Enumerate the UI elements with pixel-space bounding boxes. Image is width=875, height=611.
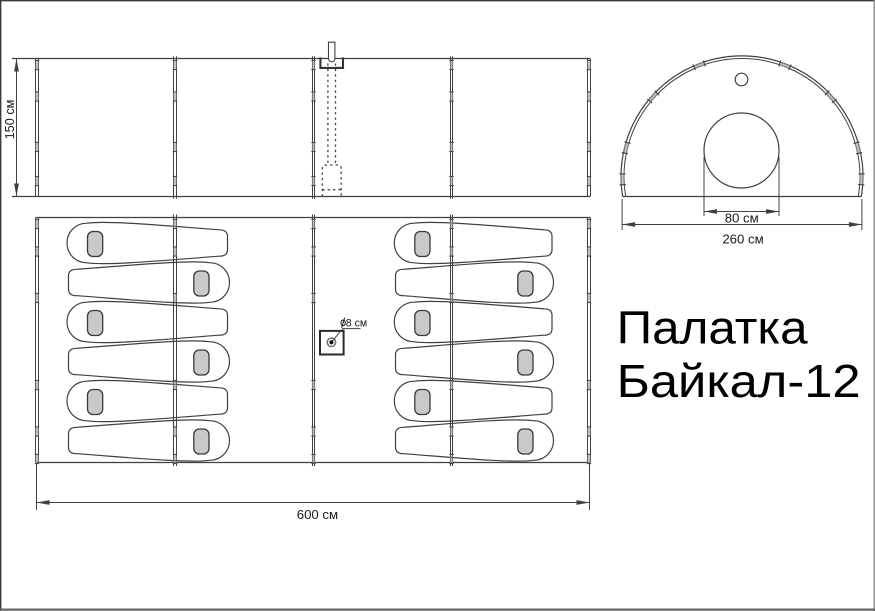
svg-text:Байкал-12: Байкал-12: [617, 355, 861, 407]
svg-text:600 см: 600 см: [297, 507, 338, 522]
svg-text:150 см: 150 см: [3, 100, 17, 140]
svg-text:Палатка: Палатка: [617, 302, 808, 354]
svg-text:8 см: 8 см: [346, 318, 367, 330]
svg-text:260 см: 260 см: [722, 231, 763, 246]
svg-text:80 см: 80 см: [725, 211, 759, 226]
